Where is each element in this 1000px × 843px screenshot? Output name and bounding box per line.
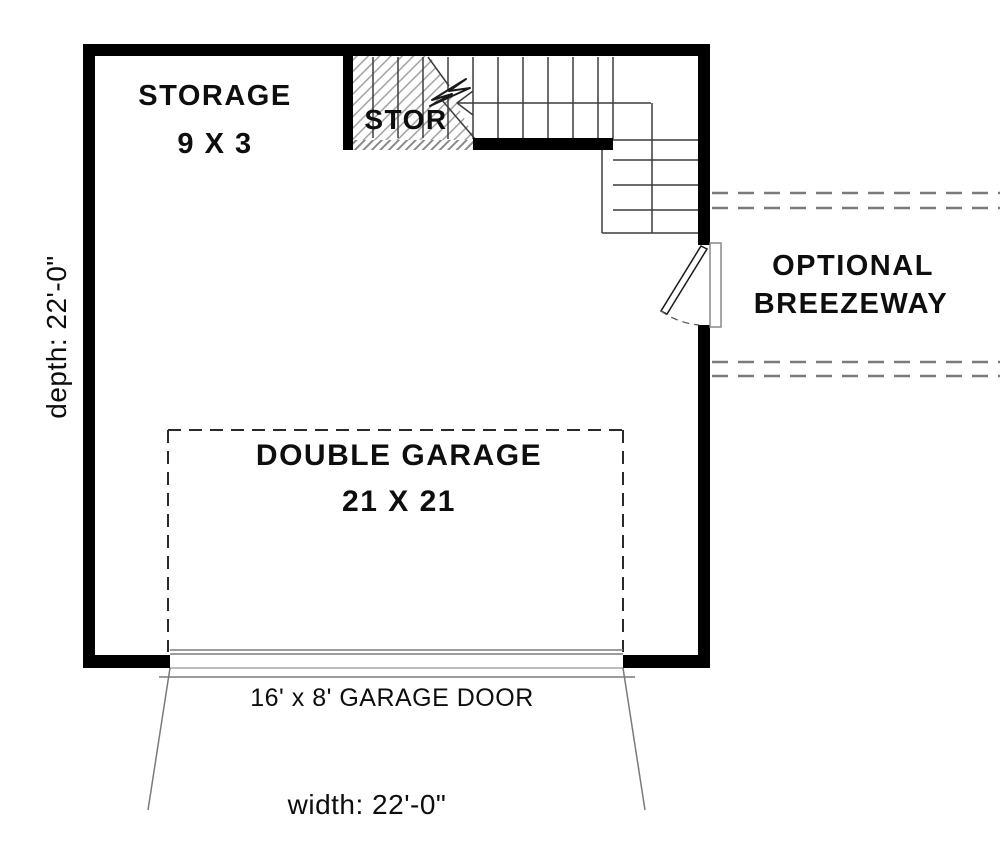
driveway-flare-left bbox=[148, 668, 170, 810]
wall-right-lower bbox=[698, 325, 710, 668]
stair-storage-label: STOR bbox=[346, 104, 466, 136]
garage-room-label: DOUBLE GARAGE bbox=[249, 439, 549, 473]
door-leaf bbox=[661, 246, 707, 314]
breezeway-label-line2: BREEZEWAY bbox=[741, 288, 961, 321]
hatch-sill-band bbox=[347, 140, 473, 150]
wall-bottom-left bbox=[83, 655, 170, 668]
breezeway-dashed-lines bbox=[712, 193, 1000, 376]
side-entry-door bbox=[661, 243, 721, 327]
wall-top bbox=[83, 44, 710, 56]
garage-door-lines bbox=[148, 650, 645, 810]
wall-under-stair bbox=[473, 138, 613, 150]
floor-plan-canvas: STORAGE 9 X 3 STOR DOUBLE GARAGE 21 X 21… bbox=[0, 0, 1000, 843]
depth-dimension-label: depth: 22'-0" bbox=[42, 227, 72, 447]
wall-right-upper bbox=[698, 44, 710, 245]
width-dimension-label: width: 22'-0" bbox=[242, 790, 492, 820]
garage-room-size: 21 X 21 bbox=[249, 485, 549, 519]
floor-plan-drawing bbox=[0, 0, 1000, 843]
storage-room-size: 9 X 3 bbox=[90, 128, 340, 161]
wall-bottom-right bbox=[623, 655, 710, 668]
garage-door-label: 16' x 8' GARAGE DOOR bbox=[242, 684, 542, 713]
breezeway-label-line1: OPTIONAL bbox=[743, 250, 963, 283]
door-jamb bbox=[710, 243, 721, 327]
driveway-flare-right bbox=[623, 668, 645, 810]
storage-room-label: STORAGE bbox=[90, 80, 340, 113]
